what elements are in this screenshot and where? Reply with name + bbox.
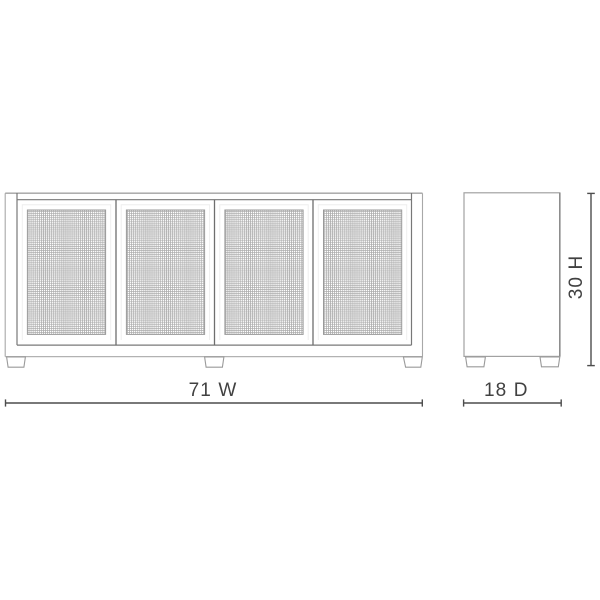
svg-text:71 W: 71 W [189, 380, 238, 401]
svg-text:30 H: 30 H [566, 255, 587, 300]
svg-text:18 D: 18 D [484, 380, 529, 401]
